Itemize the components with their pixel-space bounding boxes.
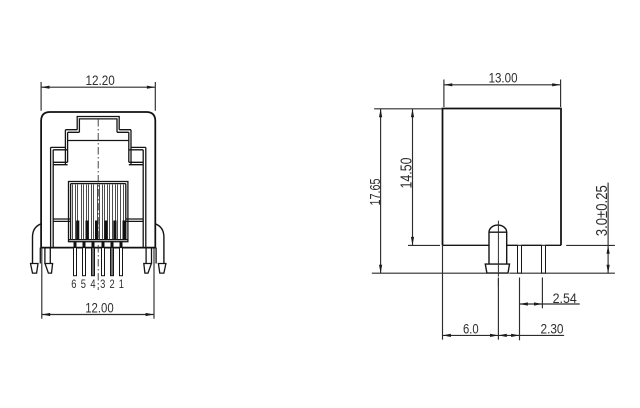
svg-text:17.65: 17.65: [367, 179, 384, 206]
svg-text:2: 2: [110, 277, 115, 291]
svg-text:13.00: 13.00: [489, 69, 518, 85]
svg-text:12.20: 12.20: [86, 73, 115, 88]
svg-text:5: 5: [81, 277, 86, 291]
svg-text:2.54: 2.54: [553, 290, 577, 306]
svg-text:1: 1: [119, 277, 124, 291]
svg-text:6: 6: [71, 277, 76, 291]
svg-text:2.30: 2.30: [541, 322, 564, 337]
svg-text:3.0±0.25: 3.0±0.25: [594, 185, 611, 236]
svg-text:14.50: 14.50: [398, 157, 415, 188]
svg-text:12.00: 12.00: [85, 301, 114, 316]
svg-text:6.0: 6.0: [463, 322, 479, 337]
svg-text:3: 3: [100, 277, 105, 291]
svg-text:4: 4: [90, 277, 95, 291]
